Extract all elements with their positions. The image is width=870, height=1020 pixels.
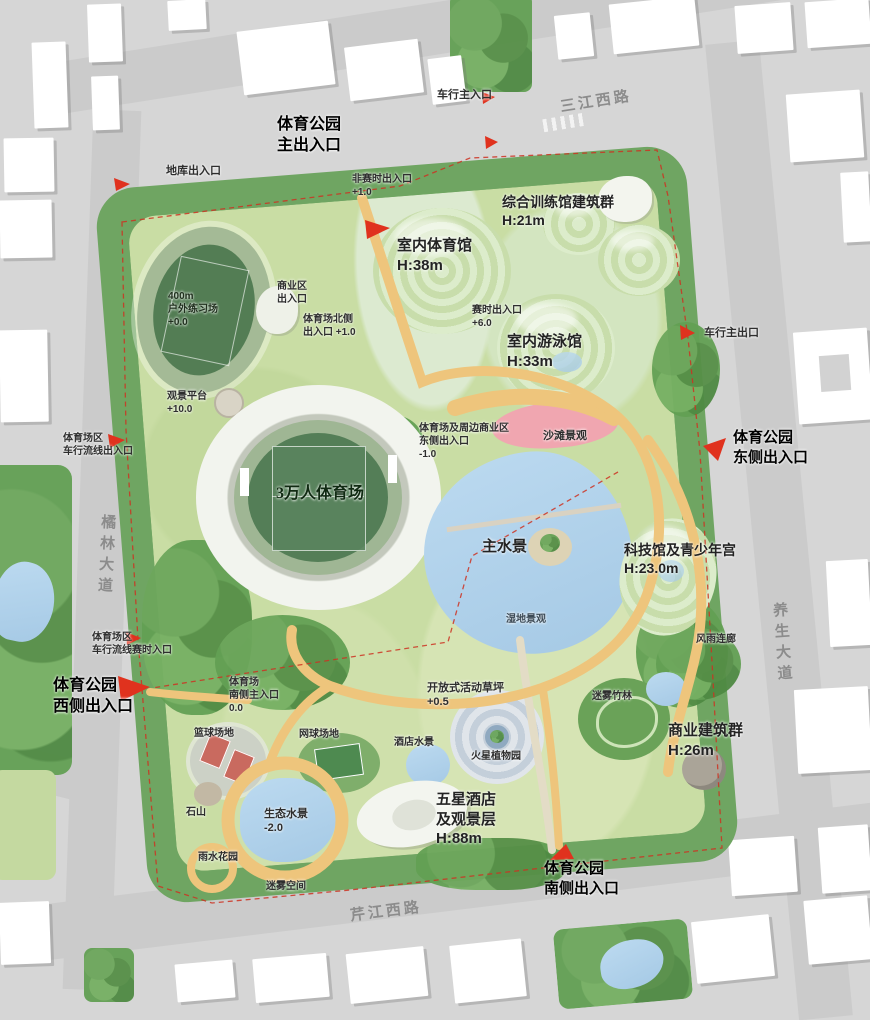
label-hotel: 五星酒店 及观景层 H:88m	[436, 790, 496, 849]
label-vehicle-main-entrance-top: 车行主入口	[437, 88, 492, 102]
building	[803, 895, 870, 964]
label-tennis-courts: 网球场地	[299, 728, 339, 741]
building	[804, 0, 870, 48]
small-pond-right	[646, 672, 686, 706]
label-indoor-gym: 室内体育馆 H:38m	[397, 236, 472, 275]
label-stadium-south-entrance: 体育场 南侧主入口 0.0	[229, 676, 279, 715]
building	[0, 901, 51, 965]
label-main-lake: 主水景	[482, 537, 527, 557]
label-park-east-entrance: 体育公园 东侧出入口	[733, 428, 808, 467]
label-beach: 沙滩景观	[543, 429, 587, 443]
label-garage-entrance: 地库出入口	[166, 164, 221, 178]
stone-hill-rock	[194, 782, 222, 806]
building	[818, 824, 870, 893]
building	[0, 330, 49, 423]
label-stadium-north-entrance: 体育场北侧 出入口 +1.0	[303, 313, 356, 339]
island-tree	[540, 534, 560, 552]
label-practice-field: 400m 户外练习场 +0.0	[168, 290, 218, 329]
label-mist-space: 迷雾空间	[266, 880, 306, 893]
label-event-entrance: 赛时出入口 +6.0	[472, 304, 522, 330]
building	[728, 836, 798, 896]
stadium-gate-east	[388, 455, 397, 483]
masterplan-map: { "roads": { "top": "三江西路", "left": "橘林大…	[0, 0, 870, 1000]
label-park-west-entrance: 体育公园 西侧出入口	[53, 676, 133, 718]
building	[840, 171, 870, 242]
building	[32, 41, 69, 128]
label-rain-garden: 雨水花园	[198, 851, 238, 864]
label-stadium-vehicle-event-entrance: 体育场区 车行流线赛时入口	[92, 631, 172, 657]
label-eco-water: 生态水景 -2.0	[264, 807, 308, 836]
building	[609, 0, 700, 54]
stadium-gate-west	[240, 468, 249, 496]
label-hotel-water: 酒店水景	[394, 736, 434, 749]
building	[174, 960, 235, 1003]
label-open-lawn: 开放式活动草坪 +0.5	[427, 681, 504, 710]
label-viewing-platform: 观景平台 +10.0	[167, 390, 207, 416]
label-stone-hill: 石山	[186, 806, 206, 819]
building	[826, 559, 870, 647]
building	[786, 90, 865, 163]
building	[794, 686, 870, 774]
building	[236, 21, 335, 96]
label-non-event-entrance: 非赛时出入口 +1.0	[352, 173, 412, 199]
label-mist-bamboo: 迷雾竹林	[592, 690, 632, 703]
label-mars-garden: 火星植物园	[471, 750, 521, 763]
label-commercial-entrance: 商业区 出入口	[277, 280, 307, 306]
training-dome-2	[598, 224, 680, 296]
label-indoor-pool: 室内游泳馆 H:33m	[507, 332, 582, 371]
building-courtyard	[819, 354, 851, 392]
label-stadium: 3万人体育场	[276, 484, 364, 505]
green-left-lower	[0, 770, 56, 880]
road-name-top: 三江西路	[559, 86, 633, 117]
green-bottom-left	[84, 948, 134, 1002]
label-wetland: 湿地景观	[506, 613, 546, 626]
building	[554, 12, 594, 60]
building	[91, 76, 120, 131]
label-commercial-buildings: 商业建筑群 H:26m	[668, 721, 743, 760]
mars-center-tree	[490, 730, 504, 743]
building	[734, 2, 793, 54]
label-vehicle-main-exit-right: 车行主出口	[704, 326, 759, 340]
tennis-court	[314, 743, 364, 781]
building	[346, 946, 429, 1004]
building	[344, 39, 424, 102]
label-rain-corridor: 风雨连廊	[696, 633, 736, 646]
building	[167, 0, 207, 31]
building	[691, 914, 775, 984]
label-science-youth-center: 科技馆及青少年宫 H:23.0m	[624, 541, 736, 577]
building	[449, 938, 527, 1003]
building	[252, 953, 330, 1003]
building	[87, 3, 123, 62]
label-stadium-vehicle-entrance: 体育场区 车行流线出入口	[63, 432, 133, 458]
label-basketball-courts: 篮球场地	[194, 727, 234, 740]
label-training-complex: 综合训练馆建筑群 H:21m	[502, 193, 614, 229]
building	[0, 200, 53, 259]
building	[4, 138, 55, 193]
label-stadium-commercial-east-entrance: 体育场及周边商业区 东侧出入口 -1.0	[419, 422, 509, 461]
label-park-main-entrance: 体育公园 主出入口	[253, 115, 365, 157]
label-park-south-entrance: 体育公园 南侧出入口	[544, 859, 619, 898]
